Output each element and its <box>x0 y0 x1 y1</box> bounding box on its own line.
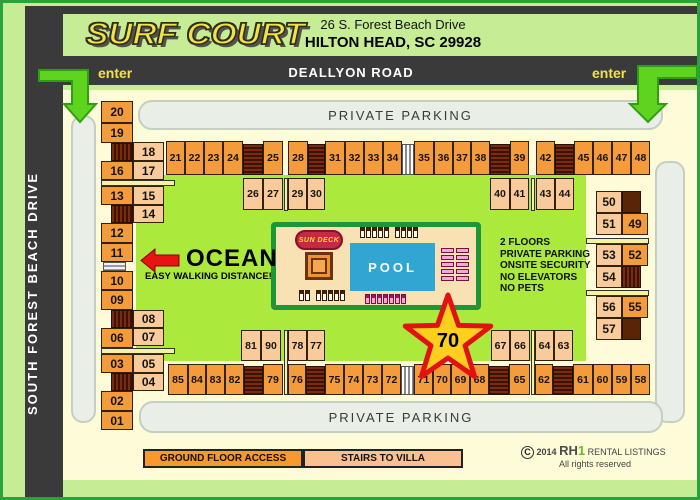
chair-icon <box>401 227 406 238</box>
beach-steps-icon <box>103 262 126 271</box>
stairs-icon <box>306 366 325 395</box>
chair-icon <box>413 227 418 238</box>
stairs-icon <box>490 144 510 175</box>
chair-icon <box>383 294 388 304</box>
deck-chairs-icon <box>395 227 419 238</box>
walkway <box>284 178 288 211</box>
chair-icon <box>441 269 454 274</box>
stairs-icon <box>111 143 133 161</box>
walkway <box>586 290 649 296</box>
chair-icon <box>441 262 454 267</box>
walkway <box>531 330 535 395</box>
stairs-icon <box>308 144 325 175</box>
legend-stairs-villa: STAIRS TO VILLA <box>303 449 463 468</box>
chair-icon <box>305 290 310 301</box>
deck-chairs-icon <box>316 290 346 301</box>
deck-chairs-icon <box>360 227 390 238</box>
chair-icon <box>395 294 400 304</box>
stairs-icon <box>111 373 133 391</box>
surf-court-map-page: SURF COURT 26 S. Forest Beach Drive HILT… <box>0 0 700 500</box>
chair-icon <box>377 294 382 304</box>
walkway <box>531 178 535 211</box>
stairs-icon <box>111 310 133 328</box>
features-layer <box>3 3 700 500</box>
stair-block-icon <box>622 318 641 340</box>
chair-icon <box>334 290 339 301</box>
info-line: NO ELEVATORS <box>500 272 591 284</box>
stairs-icon <box>489 366 509 395</box>
walkway <box>586 238 649 244</box>
chair-icon <box>389 294 394 304</box>
info-line: ONSITE SECURITY <box>500 260 591 272</box>
stairs-icon <box>622 266 641 288</box>
chair-icon <box>299 290 304 301</box>
chair-icon <box>441 255 454 260</box>
chair-icon <box>322 290 327 301</box>
chair-icon <box>456 262 469 267</box>
rights-reserved: All rights reserved <box>559 459 696 470</box>
stairs-icon <box>111 205 133 223</box>
deck-chairs-icon <box>299 290 311 301</box>
lounge-chairs-icon <box>441 248 454 283</box>
chair-icon <box>360 227 365 238</box>
chair-icon <box>441 276 454 281</box>
lounge-chairs-icon <box>395 294 407 304</box>
chair-icon <box>328 290 333 301</box>
chair-icon <box>441 248 454 253</box>
chair-icon <box>316 290 321 301</box>
chair-icon <box>401 294 406 304</box>
walkway <box>284 330 288 395</box>
stairs-icon <box>553 366 573 395</box>
chair-icon <box>366 227 371 238</box>
brand-rh: RH <box>559 443 578 458</box>
beach-steps-icon <box>401 366 414 395</box>
lounge-chairs-icon <box>456 248 469 283</box>
brand-rest: RENTAL LISTINGS <box>588 447 666 457</box>
copyright: C 2014 RH1 RENTAL LISTINGS All rights re… <box>521 445 696 470</box>
chair-icon <box>456 269 469 274</box>
brand-one: 1 <box>578 443 585 458</box>
chair-icon <box>365 294 370 304</box>
beach-steps-icon <box>402 144 414 175</box>
chair-icon <box>456 276 469 281</box>
info-line: NO PETS <box>500 283 591 295</box>
stairs-icon <box>555 144 574 175</box>
lounge-chairs-icon <box>365 294 395 304</box>
info-line: PRIVATE PARKING <box>500 249 591 261</box>
chair-icon <box>395 227 400 238</box>
chair-icon <box>371 294 376 304</box>
info-line: 2 FLOORS <box>500 237 591 249</box>
copyright-year: 2014 <box>537 447 557 457</box>
chair-icon <box>456 255 469 260</box>
chair-icon <box>384 227 389 238</box>
chair-icon <box>407 227 412 238</box>
legend-ground-floor: GROUND FLOOR ACCESS <box>143 449 303 468</box>
walkway <box>101 348 175 354</box>
chair-icon <box>340 290 345 301</box>
chair-icon <box>372 227 377 238</box>
chair-icon <box>456 248 469 253</box>
stair-block-icon <box>622 191 641 213</box>
walkway <box>101 180 175 186</box>
stairs-icon <box>244 366 263 395</box>
ocean-label: OCEAN <box>186 245 278 273</box>
ocean-sub-label: EASY WALKING DISTANCE! <box>145 271 272 282</box>
property-info: 2 FLOORS PRIVATE PARKING ONSITE SECURITY… <box>500 237 591 295</box>
copyright-icon: C <box>521 446 534 459</box>
chair-icon <box>378 227 383 238</box>
stairs-icon <box>243 144 263 175</box>
